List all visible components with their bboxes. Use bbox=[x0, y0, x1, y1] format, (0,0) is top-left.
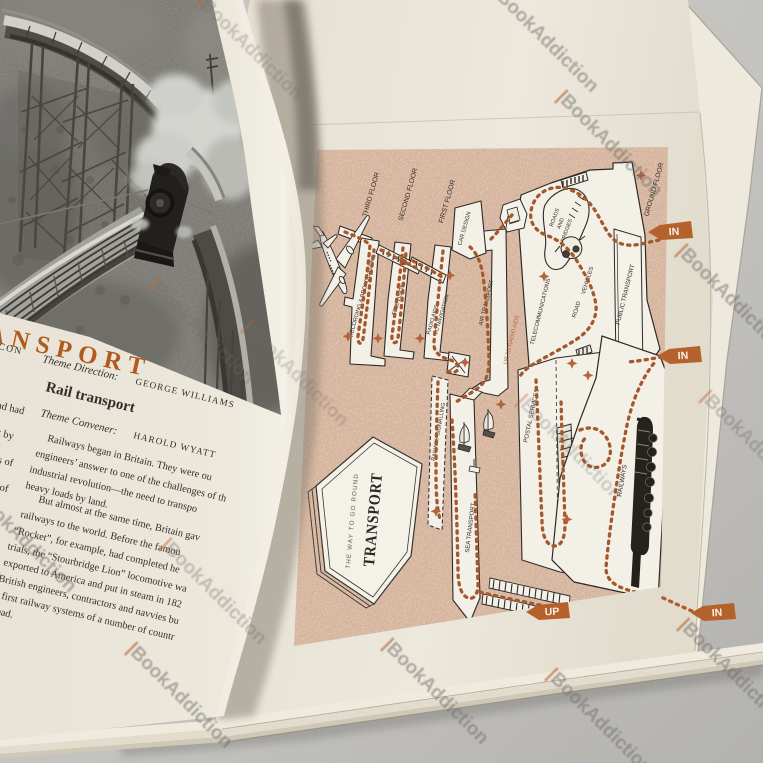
svg-text:IN: IN bbox=[711, 607, 722, 620]
svg-text:IN: IN bbox=[668, 226, 679, 239]
svg-text:UP: UP bbox=[544, 606, 559, 619]
svg-text:IN: IN bbox=[677, 350, 688, 363]
